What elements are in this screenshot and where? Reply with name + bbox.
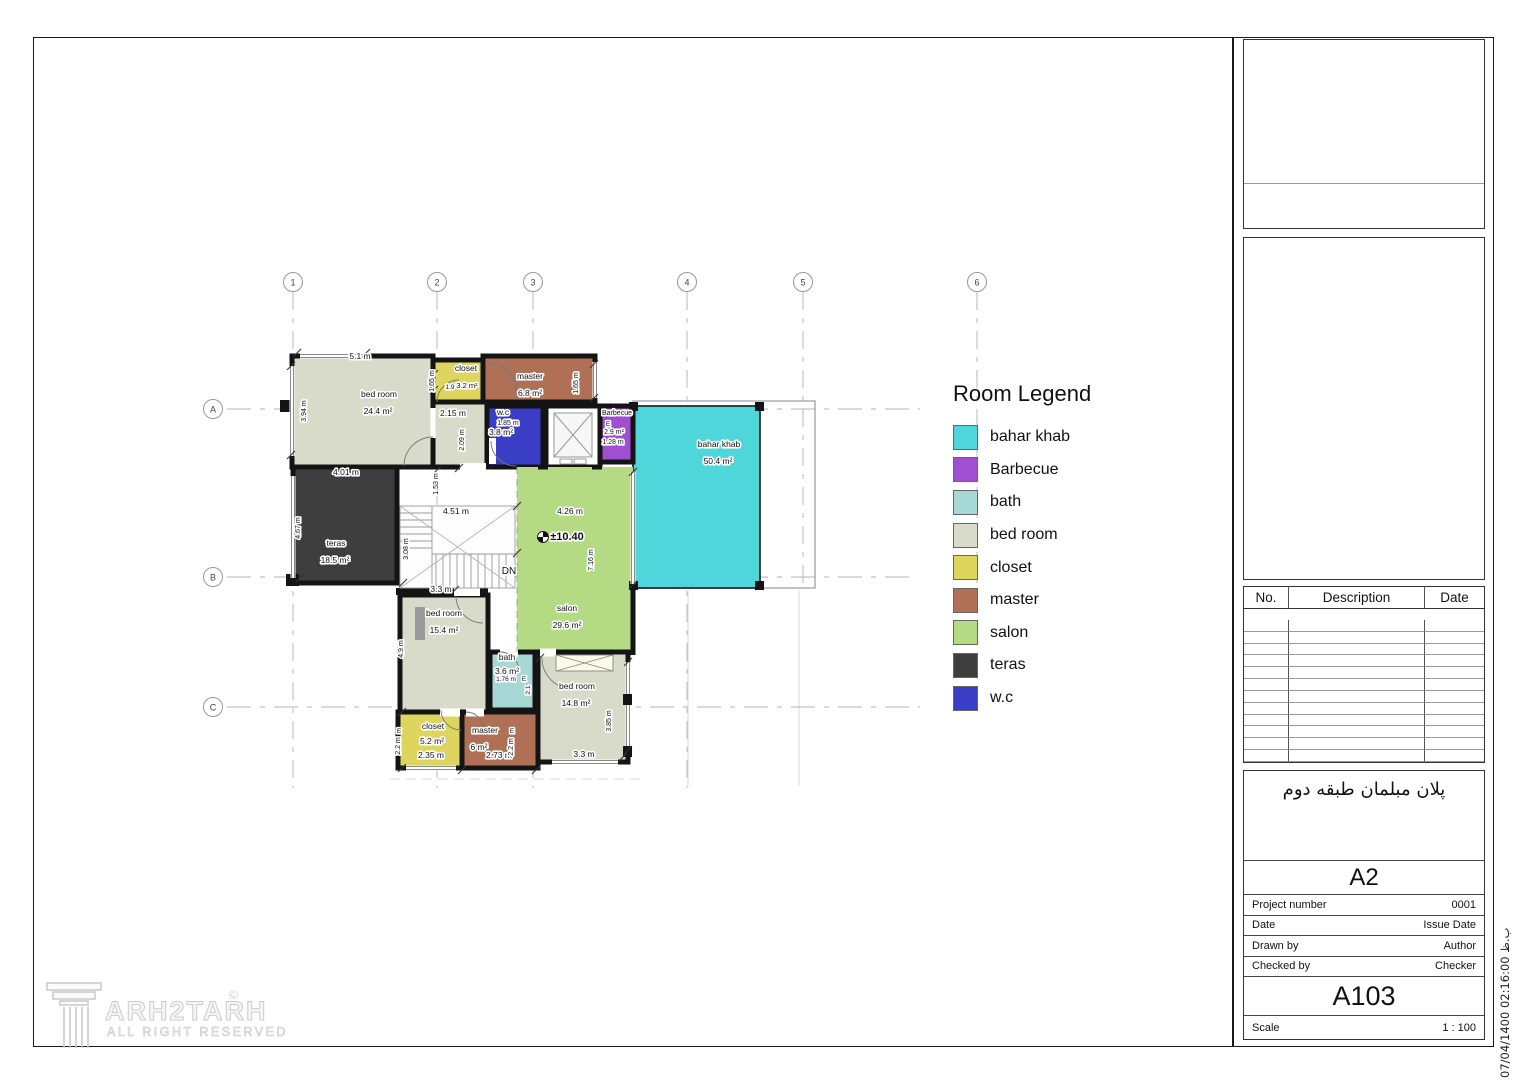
revision-empty-cell — [1244, 620, 1289, 632]
grid-bubble-col: 5 — [794, 273, 813, 292]
plan-label: 3.3 m — [430, 584, 451, 594]
plan-label: 1.9 — [445, 384, 454, 391]
titleblock-divider-line — [1232, 37, 1234, 1047]
legend-label: bahar khab — [990, 428, 1070, 446]
revision-empty-cell — [1289, 655, 1425, 667]
revision-empty-cell — [1425, 726, 1484, 738]
legend-label: Barbecue — [990, 461, 1059, 479]
plan-label: 1.76 m — [496, 676, 516, 683]
revision-empty-cell — [1425, 667, 1484, 679]
plan-label: 2.2 m — [395, 737, 402, 755]
revision-empty-cell — [1244, 632, 1289, 644]
legend-swatch-wc — [953, 686, 978, 711]
legend-item: salon — [953, 617, 1153, 650]
plan-label: 4.51 m — [443, 506, 469, 516]
revision-empty-cell — [1425, 703, 1484, 715]
plan-label: 3.3 m — [573, 749, 594, 759]
revision-empty-cell — [1244, 750, 1289, 762]
grid-bubble-col: 2 — [428, 273, 447, 292]
legend-label: w.c — [990, 689, 1013, 707]
svg-text:A: A — [210, 405, 216, 415]
legend-item: master — [953, 584, 1153, 617]
revision-empty-cell — [1425, 655, 1484, 667]
legend-label: master — [990, 591, 1039, 609]
room-teras — [293, 467, 397, 583]
field-label: Drawn by — [1252, 940, 1298, 952]
legend-item: bed room — [953, 519, 1153, 552]
wardrobe-bedroom-3 — [556, 655, 613, 671]
titleblock-consultant-box — [1243, 237, 1485, 580]
plan-label: E — [397, 728, 402, 735]
legend-item: bahar khab — [953, 421, 1153, 454]
plan-label: 4.26 m — [557, 506, 583, 516]
titleblock-field-row: DateIssue Date — [1244, 916, 1484, 937]
legend-swatch-baharkhab — [953, 425, 978, 450]
revision-col-header: Description — [1289, 587, 1425, 609]
plan-label: E — [510, 728, 515, 735]
copyright-icon: © — [229, 988, 238, 1002]
plan-label: bed room — [559, 681, 595, 691]
grid-bubble-col: 4 — [678, 273, 697, 292]
revision-empty-cell — [1425, 691, 1484, 703]
plan-label: 2.15 m — [440, 408, 466, 418]
plan-label: closet — [455, 363, 478, 373]
plan-label: 2.9 m² — [604, 429, 625, 436]
grid-bubble-row: B — [204, 568, 223, 587]
legend-label: teras — [990, 656, 1026, 674]
plan-label: 50.4 m² — [704, 456, 733, 466]
plan-label: 3.2 m² — [456, 381, 478, 390]
legend-item: teras — [953, 649, 1153, 682]
revision-empty-cell — [1244, 703, 1289, 715]
revision-empty-cell — [1425, 620, 1484, 632]
plan-label: bed room — [361, 389, 397, 399]
plan-label: 3.8 m² — [489, 427, 513, 437]
titleblock: No.DescriptionDate پلان مبلمان طبقه دوم … — [1243, 37, 1485, 1040]
plan-label: 15.4 m² — [430, 625, 459, 635]
legend-swatch-salon — [953, 620, 978, 645]
revision-empty-cell — [1289, 667, 1425, 679]
plan-label: ±10.40 — [550, 531, 584, 543]
revision-empty-cell — [1425, 644, 1484, 656]
plan-label: 3.08 m — [403, 538, 410, 560]
revision-empty-cell — [1289, 726, 1425, 738]
revision-empty-cell — [1425, 750, 1484, 762]
revision-empty-cell — [1244, 655, 1289, 667]
sheet-title-farsi: پلان مبلمان طبقه دوم — [1244, 771, 1484, 861]
plan-label: 14.8 m² — [562, 698, 591, 708]
plan-label: bahar khab — [698, 439, 741, 449]
revision-empty-cell — [1244, 726, 1289, 738]
plan-label: 2.09 m — [459, 429, 466, 451]
titleblock-field-row: Checked byChecker — [1244, 957, 1484, 978]
field-value: Issue Date — [1423, 919, 1476, 931]
plan-label: salon — [557, 603, 578, 613]
plan-label: Barbecue — [602, 410, 632, 417]
scale-row: Scale 1 : 100 — [1244, 1016, 1484, 1039]
revision-empty-cell — [1289, 620, 1425, 632]
legend-swatch-barbecue — [953, 457, 978, 482]
logo-tagline: ALL RIGHT RESERVED — [107, 1025, 288, 1039]
column-icon — [33, 978, 103, 1050]
revision-empty-cell — [1244, 679, 1289, 691]
room-bed-room-1 — [292, 356, 433, 467]
plan-label: 24.4 m² — [364, 406, 393, 416]
plan-label: 1.53 m — [433, 473, 440, 495]
sheet-format: A2 — [1244, 861, 1484, 895]
revision-empty-cell — [1244, 667, 1289, 679]
field-value: Checker — [1435, 960, 1476, 972]
plan-label: closet — [422, 721, 445, 731]
plan-label: 2.35 m — [418, 750, 444, 760]
svg-text:3: 3 — [530, 278, 535, 288]
grid-bubble-row: C — [204, 698, 223, 717]
room-legend-items: bahar khabBarbecuebathbed roomclosetmast… — [953, 421, 1153, 714]
revision-empty-cell — [1289, 738, 1425, 750]
plan-label: 2.2 m — [508, 738, 515, 756]
svg-text:1: 1 — [290, 278, 295, 288]
titleblock-logo-box — [1243, 39, 1485, 229]
legend-swatch-bedroom — [953, 523, 978, 548]
revision-empty-cell — [1425, 679, 1484, 691]
legend-item: w.c — [953, 682, 1153, 715]
field-label: Date — [1252, 919, 1275, 931]
plan-label: 1.65 m — [573, 372, 580, 394]
legend-label: bath — [990, 493, 1021, 511]
plan-label: 3.94 m — [301, 400, 308, 422]
plan-label: 1.65 m — [429, 370, 436, 392]
revision-empty-cell — [1289, 750, 1425, 762]
legend-swatch-master — [953, 588, 978, 613]
company-logo: ARH2TARH © ALL RIGHT RESERVED — [33, 978, 263, 1050]
plan-label: E — [606, 421, 611, 428]
legend-swatch-closet — [953, 555, 978, 580]
plan-label: master — [517, 371, 543, 381]
revision-empty-cell — [1289, 632, 1425, 644]
spot-elevation-icon — [538, 532, 549, 543]
plan-label: w.c — [496, 407, 510, 417]
revision-empty-cell — [1289, 691, 1425, 703]
revision-col-header: Date — [1425, 587, 1484, 609]
plan-label: 4.67 m — [295, 517, 302, 539]
logo-wordmark: ARH2TARH — [105, 996, 268, 1027]
titleblock-field-row: Project number0001 — [1244, 895, 1484, 916]
grid-bubble-row: A — [204, 400, 223, 419]
floor-plan-canvas: 123456ABC — [200, 262, 1000, 807]
plan-label: 18.5 m² — [321, 555, 350, 565]
svg-text:5: 5 — [800, 278, 805, 288]
legend-label: closet — [990, 559, 1032, 577]
revision-empty-cell — [1289, 715, 1425, 727]
plan-label: teras — [327, 538, 346, 548]
revision-empty-cell — [1244, 715, 1289, 727]
legend-item: closet — [953, 551, 1153, 584]
plan-label: DN — [502, 566, 516, 577]
svg-text:2: 2 — [434, 278, 439, 288]
revision-empty-cell — [1425, 715, 1484, 727]
field-value: Author — [1444, 940, 1476, 952]
grid-bubble-col: 6 — [968, 273, 987, 292]
plan-label: 1.85 m — [497, 420, 519, 427]
legend-swatch-bath — [953, 490, 978, 515]
titleblock-logo-box-divider — [1244, 183, 1484, 184]
plan-label: bath — [499, 652, 516, 662]
sheet-number: A103 — [1244, 977, 1484, 1016]
revision-empty-cell — [1289, 679, 1425, 691]
plan-label: bed room — [426, 608, 462, 618]
room-legend: Room Legend bahar khabBarbecuebathbed ro… — [953, 381, 1153, 714]
scale-value: 1 : 100 — [1442, 1022, 1476, 1034]
svg-text:4: 4 — [684, 278, 689, 288]
field-label: Project number — [1252, 899, 1327, 911]
plan-label: 2.1 — [525, 685, 532, 694]
plan-label: 4.9 m — [398, 640, 405, 658]
titleblock-field-row: Drawn byAuthor — [1244, 936, 1484, 957]
room-legend-title: Room Legend — [953, 381, 1153, 407]
revision-empty-cell — [1289, 703, 1425, 715]
legend-swatch-teras — [953, 653, 978, 678]
legend-label: bed room — [990, 526, 1058, 544]
grid-bubble-col: 3 — [524, 273, 543, 292]
revision-empty-cell — [1244, 738, 1289, 750]
plan-label: 5.1 m — [349, 351, 370, 361]
revision-empty-cell — [1244, 644, 1289, 656]
revision-empty-cell — [1425, 632, 1484, 644]
revision-col-header: No. — [1244, 587, 1289, 609]
plan-label: 6.8 m² — [518, 388, 542, 398]
titleblock-main: پلان مبلمان طبقه دوم A2 Project number00… — [1243, 770, 1485, 1040]
plan-label: master — [472, 725, 498, 735]
plan-label: 29.6 m² — [553, 620, 582, 630]
legend-item: Barbecue — [953, 454, 1153, 487]
svg-text:C: C — [210, 703, 217, 713]
plan-label: 3.6 m² — [495, 666, 519, 676]
legend-label: salon — [990, 624, 1028, 642]
plan-label: 4.01 m — [333, 467, 359, 477]
svg-text:6: 6 — [974, 278, 979, 288]
plan-label: E — [522, 676, 527, 683]
scale-label: Scale — [1252, 1022, 1280, 1034]
plot-timestamp: 07/04/1400 02:16:00 ب.ظ — [1498, 892, 1512, 1078]
plan-label: 3.85 m — [606, 710, 613, 732]
wardrobe-bedroom-2 — [415, 607, 425, 640]
field-value: 0001 — [1452, 899, 1476, 911]
plan-label: 7.16 m — [588, 549, 595, 571]
plan-label: 1.28 m — [602, 439, 624, 446]
svg-text:B: B — [210, 573, 216, 583]
plan-label: 5.2 m² — [420, 736, 444, 746]
revision-table: No.DescriptionDate — [1243, 586, 1485, 763]
room-bahar-khab — [633, 406, 760, 588]
revision-empty-cell — [1244, 691, 1289, 703]
elevator-cab — [554, 413, 592, 464]
revision-empty-cell — [1425, 738, 1484, 750]
field-label: Checked by — [1252, 960, 1310, 972]
grid-bubble-col: 1 — [284, 273, 303, 292]
legend-item: bath — [953, 486, 1153, 519]
revision-empty-cell — [1289, 644, 1425, 656]
